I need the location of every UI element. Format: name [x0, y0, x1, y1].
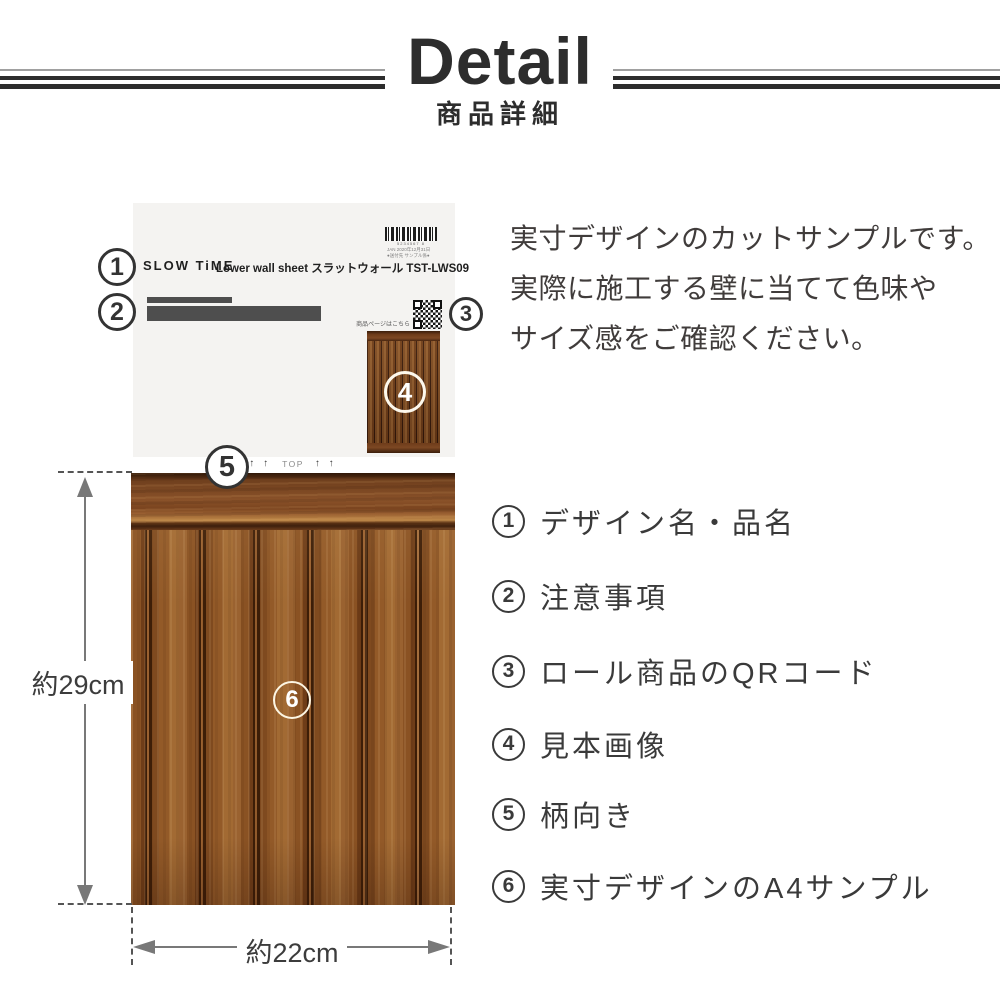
arrow-down-icon — [77, 885, 93, 905]
barcode-number: 5234567 8 — [385, 241, 437, 246]
legend-item-label: 実寸デザインのA4サンプル — [540, 865, 933, 907]
barcode-meta-line1: JAN 2020年12月31日 — [387, 247, 439, 253]
qr-caption: 商品ページはこちら — [352, 319, 410, 328]
legend-item-label: ロール商品のQRコード — [540, 650, 878, 692]
qr-code — [413, 300, 442, 329]
qr-finder-icon — [413, 320, 422, 329]
legend-item-6: 6 実寸デザインのA4サンプル — [492, 869, 933, 903]
qr-finder-icon — [413, 300, 422, 309]
legend-item-1: 1 デザイン名・品名 — [492, 504, 796, 538]
width-dimension-label: 約22cm — [192, 929, 392, 972]
legend-number-badge: 2 — [492, 580, 525, 613]
height-dim-dash-top — [58, 471, 132, 473]
callout-4: 4 — [384, 371, 426, 413]
redacted-note-bar-1 — [147, 297, 232, 303]
description-paragraph: 実寸デザインのカットサンプルです。 実際に施工する壁に当てて色味や サイズ感をご… — [510, 214, 991, 364]
legend-number-badge: 3 — [492, 655, 525, 688]
arrow-left-icon — [133, 940, 155, 954]
legend-item-4: 4 見本画像 — [492, 727, 668, 761]
callout-5: 5 — [205, 445, 249, 489]
legend-number-badge: 6 — [492, 870, 525, 903]
page-subtitle: 商品詳細 — [0, 94, 1000, 131]
legend-number-badge: 1 — [492, 505, 525, 538]
up-arrows-icon: ↑ ↑ — [249, 458, 271, 469]
page-title: Detail — [0, 26, 1000, 96]
product-detail-page: Detail 商品詳細 SLOW TiME Lower wall sheet ス… — [0, 0, 1000, 1000]
legend-item-label: 注意事項 — [540, 575, 668, 617]
legend-item-5: 5 柄向き — [492, 797, 636, 831]
legend-item-label: 見本画像 — [540, 723, 668, 765]
height-dim-dash-bottom — [58, 903, 132, 905]
callout-6: 6 — [273, 681, 311, 719]
redacted-note-bar-2 — [147, 306, 321, 321]
callout-2: 2 — [98, 293, 136, 331]
height-dimension-label: 約29cm — [18, 661, 138, 704]
description-line: 実際に施工する壁に当てて色味や — [510, 264, 991, 314]
top-mark-label: TOP — [282, 459, 304, 469]
arrow-up-icon — [77, 477, 93, 497]
barcode — [385, 227, 437, 241]
arrow-right-icon — [428, 940, 450, 954]
height-dimension-value: 約29cm — [23, 661, 132, 704]
description-line: 実寸デザインのカットサンプルです。 — [510, 214, 991, 264]
width-dim-dash-left — [131, 907, 133, 965]
description-line: サイズ感をご確認ください。 — [510, 314, 991, 364]
barcode-meta-line2: ●送付先 サンプル係● — [387, 253, 439, 259]
thumbnail-bottom-rail — [367, 443, 440, 453]
legend-item-label: 柄向き — [540, 793, 636, 835]
up-arrows-icon: ↑ ↑ — [315, 458, 337, 469]
legend-number-badge: 4 — [492, 728, 525, 761]
product-name-text: Lower wall sheet スラットウォール TST-LWS09 — [216, 260, 469, 276]
legend-number-badge: 5 — [492, 798, 525, 831]
wall-sheet-top-rail — [131, 473, 455, 530]
legend-item-label: デザイン名・品名 — [540, 500, 796, 542]
width-dim-dash-right — [450, 907, 452, 965]
legend-item-2: 2 注意事項 — [492, 579, 668, 613]
callout-3: 3 — [449, 297, 483, 331]
legend-item-3: 3 ロール商品のQRコード — [492, 654, 878, 688]
thumbnail-top-rail — [367, 331, 440, 341]
qr-finder-icon — [433, 300, 442, 309]
width-dimension-value: 約22cm — [237, 929, 346, 972]
callout-1: 1 — [98, 248, 136, 286]
